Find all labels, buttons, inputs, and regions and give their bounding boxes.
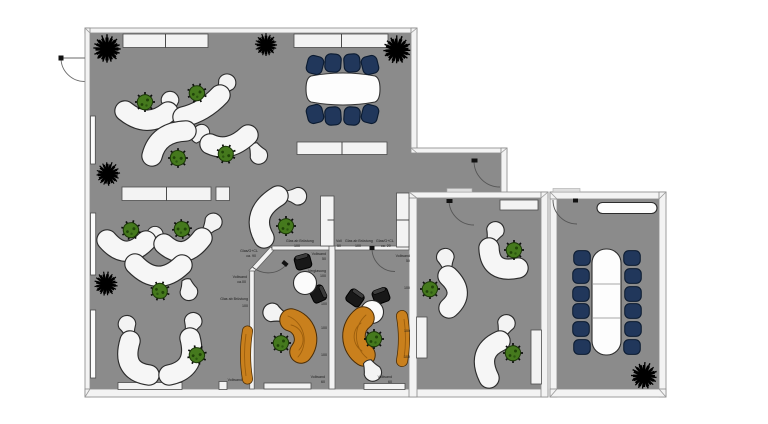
svg-text:Verglasung: Verglasung	[308, 269, 326, 273]
svg-text:Vollwand: Vollwand	[311, 375, 325, 379]
svg-text:ca.00: ca.00	[237, 280, 246, 284]
svg-text:Glas ab Brüstung: Glas ab Brüstung	[220, 297, 248, 301]
svg-text:100: 100	[242, 304, 248, 308]
svg-text:100: 100	[404, 329, 410, 333]
svg-text:100: 100	[321, 353, 327, 357]
svg-text:100: 100	[320, 274, 326, 278]
svg-text:ca. 20: ca. 20	[381, 244, 391, 248]
svg-text:Vollwand: Vollwand	[228, 378, 242, 382]
svg-text:Glas ab Brüstung: Glas ab Brüstung	[286, 239, 314, 243]
svg-text:100: 100	[321, 326, 327, 330]
svg-text:Voll: Voll	[336, 239, 342, 243]
svg-text:ca. 90: ca. 90	[246, 254, 256, 258]
svg-text:Vollwand: Vollwand	[233, 275, 247, 279]
svg-text:60: 60	[321, 380, 325, 384]
svg-text:Glas/G+CL: Glas/G+CL	[240, 249, 258, 253]
svg-text:Vollwand: Vollwand	[396, 254, 410, 258]
svg-text:60: 60	[388, 380, 392, 384]
svg-text:Glas/G+CL: Glas/G+CL	[376, 239, 394, 243]
svg-text:Glas ab Brüstung: Glas ab Brüstung	[345, 239, 373, 243]
svg-text:50: 50	[337, 244, 341, 248]
svg-text:100: 100	[355, 244, 361, 248]
svg-text:50: 50	[322, 257, 326, 261]
svg-text:50: 50	[406, 259, 410, 263]
svg-text:Vollwand: Vollwand	[312, 252, 326, 256]
svg-text:100: 100	[404, 355, 410, 359]
svg-text:100: 100	[404, 286, 410, 290]
svg-text:100: 100	[321, 302, 327, 306]
svg-text:100: 100	[294, 244, 300, 248]
svg-text:Vollwand: Vollwand	[378, 375, 392, 379]
